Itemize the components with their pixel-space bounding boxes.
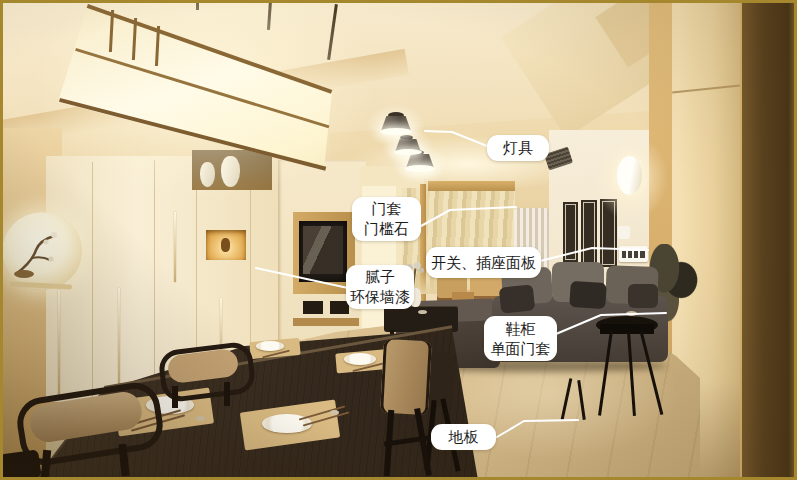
callout-door-casing-line1: 门套 (372, 199, 402, 219)
callout-shoe-cabinet-line2: 单面门套 (491, 339, 551, 359)
leader-line-floor (497, 420, 578, 437)
callout-lamp-text: 灯具 (503, 138, 533, 158)
leader-line-door-casing (421, 207, 516, 226)
callout-door-casing-line2: 门槛石 (364, 219, 409, 239)
callout-putty-line2: 环保墙漆 (350, 287, 410, 307)
callout-putty-line1: 腻子 (365, 267, 395, 287)
callout-lamp: 灯具 (487, 135, 549, 161)
leader-line-putty (256, 268, 348, 288)
leader-line-switch (540, 248, 648, 261)
leader-line-shoe-cabinet (556, 313, 666, 334)
callout-floor-text: 地板 (449, 427, 479, 447)
callout-shoe-cabinet-line1: 鞋柜 (506, 319, 536, 339)
callout-switch-socket: 开关、插座面板 (426, 247, 541, 278)
callout-shoe-cabinet: 鞋柜 单面门套 (484, 316, 557, 361)
callout-door-casing: 门套 门槛石 (352, 197, 421, 241)
callout-switch-socket-text: 开关、插座面板 (431, 253, 536, 273)
leader-line-lamp (425, 131, 487, 146)
callout-putty-paint: 腻子 环保墙漆 (346, 265, 414, 309)
callout-floor: 地板 (431, 424, 496, 450)
annotated-room-photo: 灯具 门套 门槛石 开关、插座面板 腻子 环保墙漆 鞋柜 单面门套 地板 (0, 0, 797, 480)
